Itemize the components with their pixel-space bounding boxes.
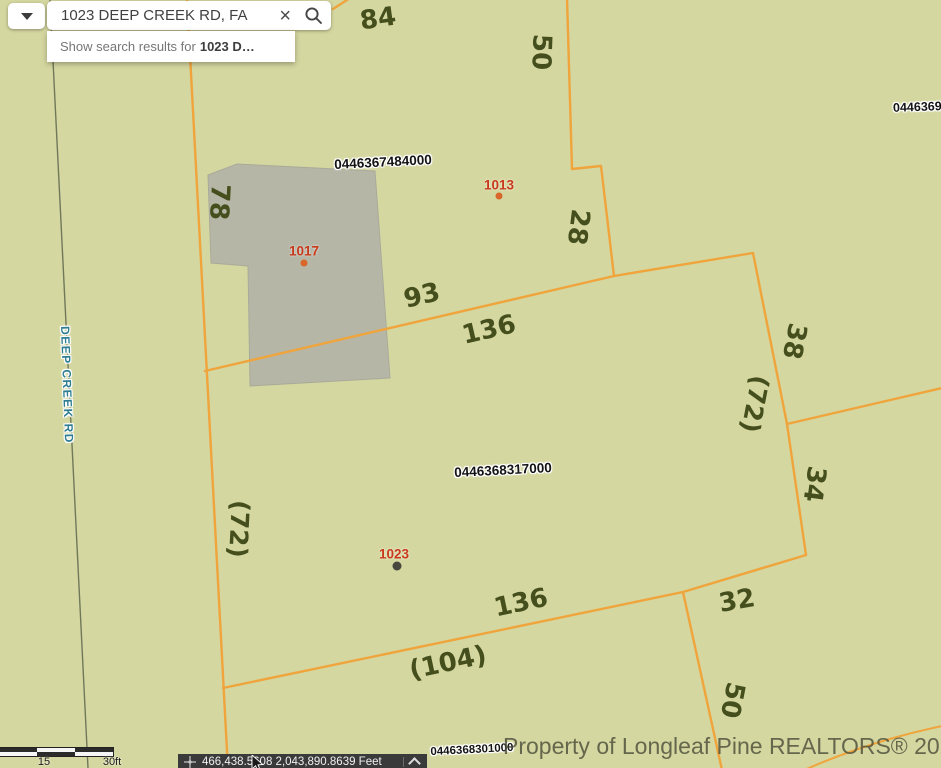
coordinate-readout: 466,438.5608 2,043,890.8639 Feet xyxy=(202,756,382,768)
address-label-1017: 1017 xyxy=(289,244,319,259)
address-label-1013: 1013 xyxy=(484,178,514,193)
dim-label-28: 28 xyxy=(561,207,595,247)
search-bar[interactable]: 1023 DEEP CREEK RD, FA × xyxy=(47,1,331,30)
dim-label-78: 78 xyxy=(203,183,235,221)
address-label-1023: 1023 xyxy=(379,547,409,562)
clear-search-icon[interactable]: × xyxy=(272,6,298,26)
chevron-up-icon[interactable] xyxy=(408,757,421,768)
scale-bar-mid-label: 15 xyxy=(38,756,50,768)
gis-parcel-map-view: 84 50 78 28 93 136 38 (72) 34 (72) 136 3… xyxy=(0,0,941,768)
scale-bar xyxy=(0,747,114,757)
address-point-1023-selected[interactable] xyxy=(393,562,402,571)
suggestion-prefix: Show search results for xyxy=(60,39,196,54)
coordinate-status-bar: 466,438.5608 2,043,890.8639 Feet xyxy=(178,754,427,768)
search-icon[interactable] xyxy=(304,6,323,25)
mouse-cursor xyxy=(251,755,265,768)
dim-label-72-left: (72) xyxy=(223,499,255,558)
statusbar-divider xyxy=(403,757,404,767)
dim-label-34: 34 xyxy=(797,464,832,504)
scale-bar-end-label: 30ft xyxy=(103,756,121,768)
parcel-id-top-right: 0446369 xyxy=(893,99,941,115)
parcel-boundary-lines xyxy=(187,0,941,768)
watermark: Property of Longleaf Pine REALTORS® 2024 xyxy=(503,733,941,760)
dim-label-50-top: 50 xyxy=(525,33,556,70)
address-point-1017[interactable] xyxy=(301,260,308,267)
search-dropdown-button[interactable] xyxy=(8,3,45,29)
dim-label-84: 84 xyxy=(358,2,398,37)
chevron-down-icon xyxy=(21,13,33,20)
address-point-1013[interactable] xyxy=(496,193,503,200)
crosshair-icon[interactable] xyxy=(184,756,196,768)
building-footprint xyxy=(208,164,390,386)
suggestion-term: 1023 D… xyxy=(200,39,255,54)
search-input[interactable]: 1023 DEEP CREEK RD, FA xyxy=(61,7,272,24)
search-suggestion[interactable]: Show search results for 1023 D… xyxy=(47,31,295,62)
dim-label-32: 32 xyxy=(717,583,758,619)
